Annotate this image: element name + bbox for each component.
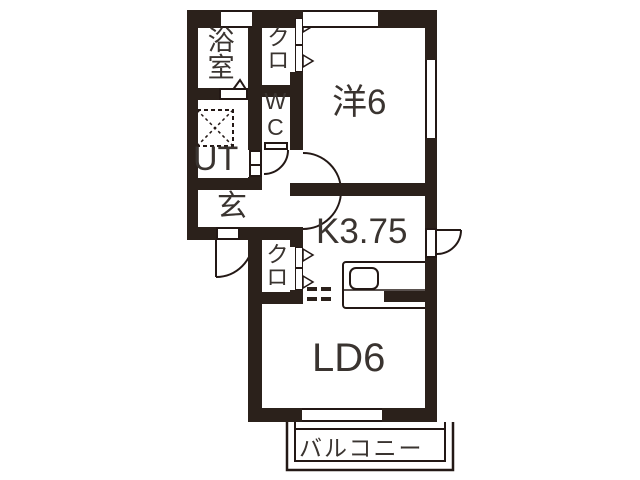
wall-segment (187, 10, 198, 240)
open-boundary-dashes (307, 287, 331, 301)
room-label-living-dining: LD6 (312, 337, 385, 379)
wall-segment (248, 408, 302, 422)
wall-segment (187, 227, 216, 240)
closet-door-panel (295, 247, 303, 268)
room-label-western-room: 洋6 (332, 84, 386, 121)
kitchen-counter (343, 262, 429, 308)
closet-door-panel (295, 45, 303, 72)
wall-segment (248, 292, 262, 422)
wall-segment (425, 138, 437, 228)
bath-door-threshold (219, 88, 248, 100)
stove-icon (384, 291, 429, 302)
room-label-utility: UT (193, 141, 238, 177)
room-label-entrance: 玄 (217, 191, 247, 223)
room-label-balcony: バルコニー (299, 436, 424, 460)
closet-door-triangle-icon (303, 276, 313, 288)
room-label-wc: WC (263, 88, 287, 140)
wall-segment (425, 258, 437, 408)
wall-segment (290, 72, 303, 150)
wall-segment (187, 88, 219, 100)
room-label-closet-top: クロ (264, 25, 288, 71)
living-dining-window (302, 408, 382, 422)
wall-segment (290, 10, 303, 18)
closet-door-triangle-icon (303, 55, 313, 67)
sink-icon (350, 268, 378, 289)
threshold-divider (251, 164, 260, 166)
kitchen-door-threshold (425, 228, 437, 258)
wall-segment (187, 178, 262, 190)
wc-door-threshold (264, 142, 288, 150)
wc-door-swing-icon (264, 150, 288, 174)
room-label-closet-kitchen: クロ (263, 242, 287, 288)
wall-segment (382, 408, 437, 422)
wall-segment (290, 183, 437, 196)
kitchen-door-swing-icon (437, 230, 461, 254)
room-label-kitchen: K3.75 (316, 213, 407, 250)
western-room-side-window (425, 60, 437, 138)
utility-door-threshold (249, 150, 262, 177)
floor-plan: 浴室 クロ WC UT 玄 洋6 K3.75 クロ LD6 バルコニー (0, 0, 640, 480)
closet-door-triangle-icon (303, 249, 313, 261)
western-room-top-window (303, 10, 378, 28)
closet-door-panel (295, 18, 303, 45)
wall-segment (425, 10, 437, 60)
closet-door-panel (295, 268, 303, 290)
wall-segment (248, 10, 262, 150)
entrance-door-threshold (216, 227, 240, 240)
room-label-bathroom: 浴室 (204, 26, 233, 80)
